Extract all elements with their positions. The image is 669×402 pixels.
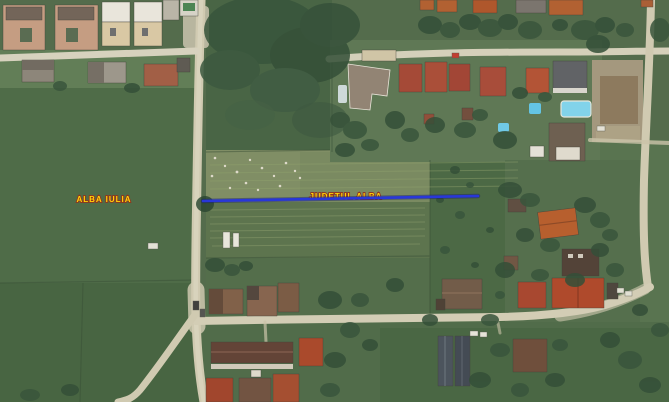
haze-overlay: [0, 0, 669, 402]
satellite-map-canvas[interactable]: JUDETUL ALBA ALBA IULIA: [0, 0, 669, 402]
satellite-map: JUDETUL ALBA ALBA IULIA: [0, 0, 669, 402]
